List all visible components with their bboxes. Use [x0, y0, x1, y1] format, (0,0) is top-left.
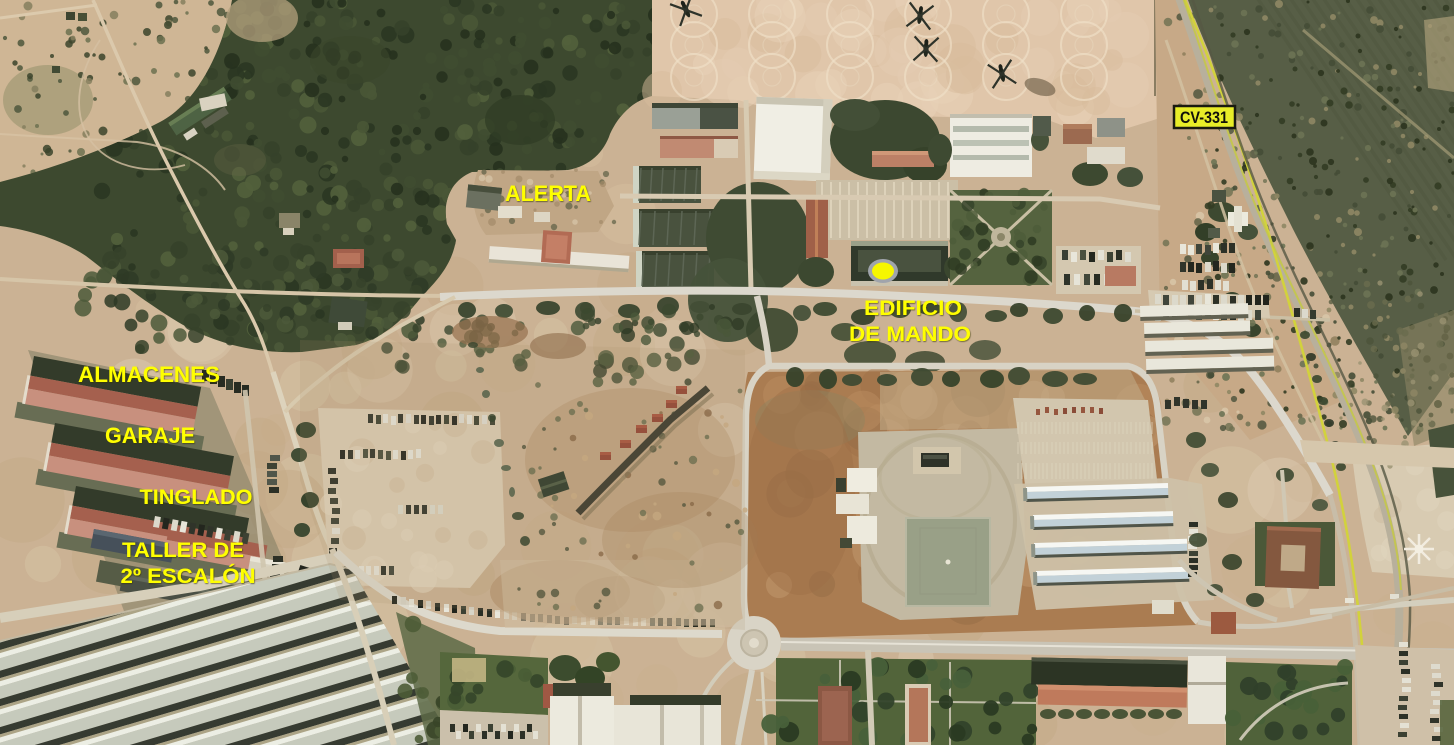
svg-text:GARAJE: GARAJE [105, 423, 195, 448]
svg-text:ALERTA: ALERTA [505, 181, 591, 206]
svg-text:CV-331: CV-331 [1180, 108, 1228, 127]
svg-text:TALLER DE: TALLER DE [122, 539, 244, 562]
svg-text:EDIFICIO: EDIFICIO [864, 297, 962, 320]
svg-text:2º ESCALÓN: 2º ESCALÓN [121, 564, 256, 588]
svg-text:TINGLADO: TINGLADO [140, 486, 253, 509]
svg-text:ALMACENES: ALMACENES [78, 362, 220, 387]
svg-text:DE MANDO: DE MANDO [849, 323, 971, 346]
